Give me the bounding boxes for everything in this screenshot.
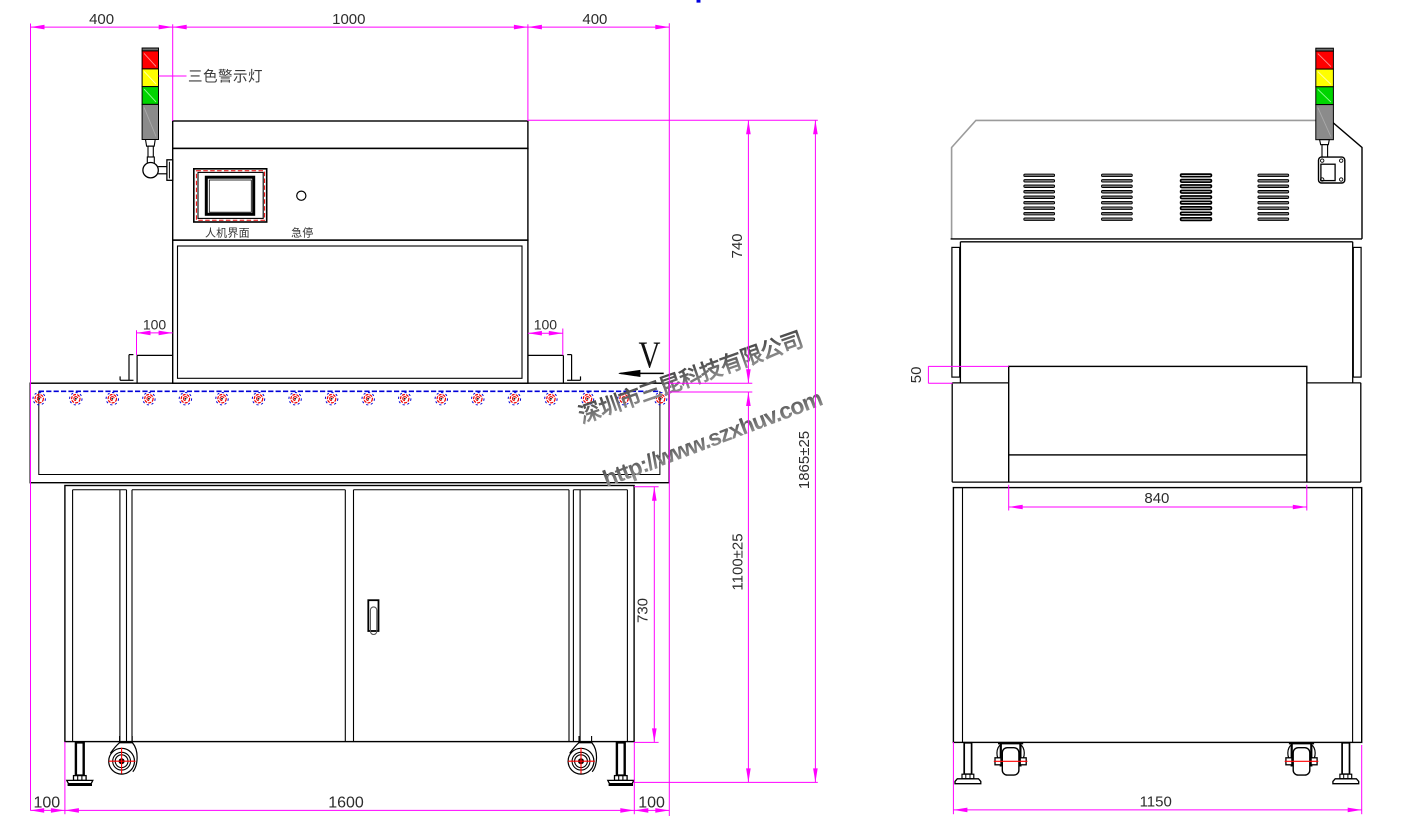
svg-text:1000: 1000 [332,11,365,28]
svg-text:840: 840 [1144,490,1169,507]
svg-text:1865±25: 1865±25 [796,431,813,489]
svg-text:人机界面: 人机界面 [205,225,250,239]
svg-text:100: 100 [143,316,167,332]
svg-text:400: 400 [89,11,114,28]
svg-text:100: 100 [33,795,60,812]
svg-text:三色警示灯: 三色警示灯 [188,68,263,85]
svg-text:730: 730 [635,598,652,623]
svg-text:400: 400 [582,11,607,28]
svg-text:100: 100 [534,316,558,332]
svg-text:1100±25: 1100±25 [729,533,746,590]
svg-text:1600: 1600 [328,795,364,812]
svg-text:100: 100 [638,795,665,812]
svg-text:1150: 1150 [1140,793,1172,810]
svg-text:急停: 急停 [291,225,313,239]
svg-text:50: 50 [908,367,925,384]
svg-text:740: 740 [729,233,746,258]
svg-text:V: V [639,335,661,377]
